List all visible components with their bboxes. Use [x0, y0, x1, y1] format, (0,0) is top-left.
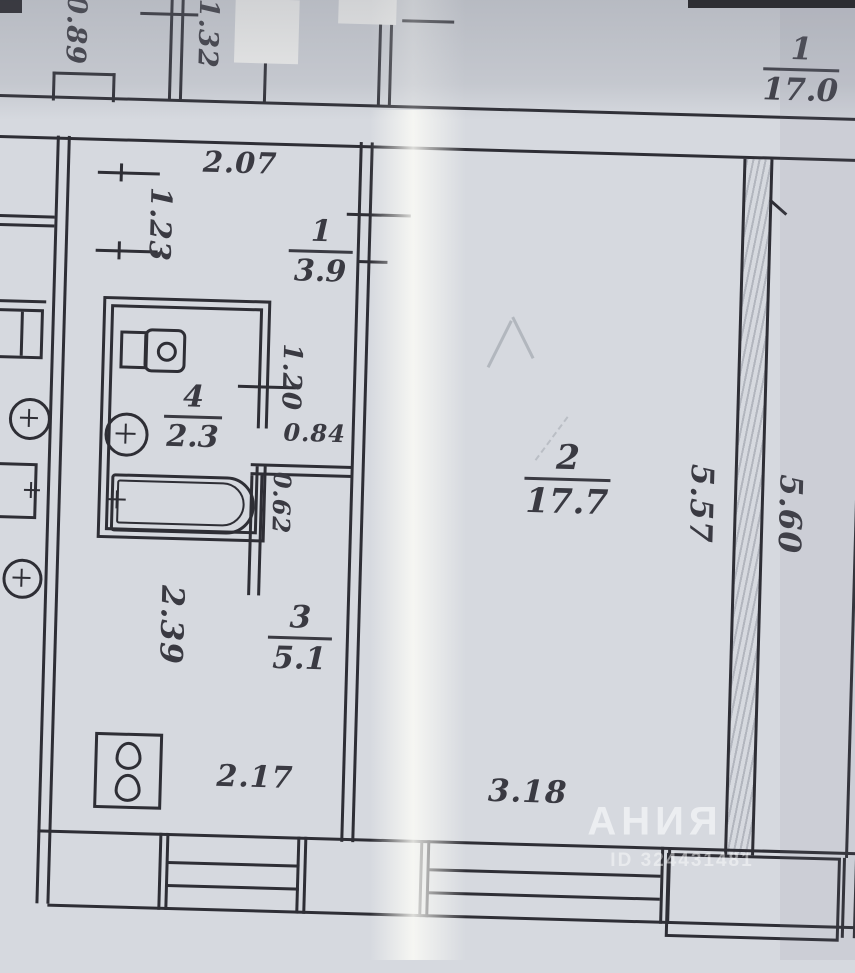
bathroom-door-gap [252, 428, 271, 466]
room-label-living: 2 17.7 [523, 440, 611, 520]
bathtub-icon [110, 473, 256, 535]
wall-top [0, 93, 855, 164]
toilet-bowl-icon [143, 328, 186, 373]
room-number: 1 [763, 33, 839, 66]
window-living [428, 891, 660, 900]
dimension-label: 0.84 [283, 418, 346, 449]
room-label-hall: 1 3.9 [288, 216, 354, 288]
burner [115, 741, 142, 770]
floorplan-drawing: 0.89 1.32 1 17.0 2.07 1. [0, 0, 855, 972]
dimension-label: 1.32 [191, 0, 224, 69]
dimension-label: 5.57 [682, 463, 720, 543]
tap [30, 482, 32, 498]
watermark-text: АНИЯ [587, 800, 722, 845]
dimension-label: 1.23 [142, 187, 178, 263]
window-jamb [418, 840, 430, 917]
stove-icon [93, 732, 163, 810]
dimension-label: 2.07 [202, 145, 278, 181]
wall-bath-stub [247, 475, 263, 595]
cross [20, 569, 23, 587]
room-number: 1 [289, 216, 354, 248]
window-jamb [295, 837, 307, 914]
toilet-drain [157, 341, 178, 362]
door-swing-tick [117, 241, 121, 259]
neighbor-sink-unit-icon [0, 308, 44, 359]
whiteout-patch [234, 0, 300, 64]
room-label-neighbor: 1 17.0 [762, 33, 839, 107]
dimension-label: 0.62 [266, 471, 297, 534]
room-area: 2.3 [163, 415, 222, 454]
window-kitchen [168, 861, 300, 868]
wall-top-niche [52, 71, 116, 102]
window-kitchen [167, 884, 299, 891]
neighbor-basin-icon [8, 397, 51, 440]
neighbor-tap-unit-icon [0, 462, 38, 519]
scanned-floorplan: 0.89 1.32 1 17.0 2.07 1. [0, 0, 855, 960]
room-number: 3 [268, 602, 333, 635]
cross [124, 424, 127, 444]
dimension-label: 5.60 [770, 474, 808, 554]
scan-dark-bar [688, 0, 855, 8]
whiteout-patch [338, 0, 397, 25]
wall-stub-left-a [0, 214, 55, 228]
room-label-kitchen: 3 5.1 [267, 602, 333, 676]
door-swing-tick [120, 163, 124, 181]
cross [28, 409, 31, 427]
dimension-label: 2.17 [216, 759, 294, 796]
room-number: 4 [164, 382, 223, 414]
neighbor-basin2-icon [2, 558, 43, 599]
dimension-label: 2.39 [152, 585, 190, 665]
divider [20, 312, 24, 356]
pencil-mark [487, 320, 513, 368]
door-swing-mark [98, 171, 160, 176]
dim-tick [347, 213, 411, 218]
dimension-label: 0.89 [59, 0, 92, 65]
bathtub-inner [116, 479, 245, 527]
watermark-id: ID 324431481 [610, 850, 753, 872]
pencil-mark [511, 316, 534, 359]
floorplan-photo: { "photo": { "watermark_text": "АНИЯ", "… [0, 0, 855, 960]
wall-right-edge [845, 162, 855, 858]
room-area: 5.1 [267, 636, 332, 676]
dimension-label: 3.18 [487, 773, 567, 811]
wall-bearing-right [724, 159, 773, 856]
dimension-label: 1.20 [275, 343, 307, 411]
burner [114, 773, 141, 802]
dim-tick [402, 19, 454, 23]
wall-stub-left-b [0, 299, 46, 304]
room-label-bathroom: 4 2.3 [163, 382, 223, 454]
window-jamb [157, 833, 169, 910]
wall-left [35, 136, 70, 904]
room-area: 3.9 [288, 249, 353, 288]
room-area: 17.7 [523, 477, 610, 520]
room-area: 17.0 [762, 67, 839, 107]
